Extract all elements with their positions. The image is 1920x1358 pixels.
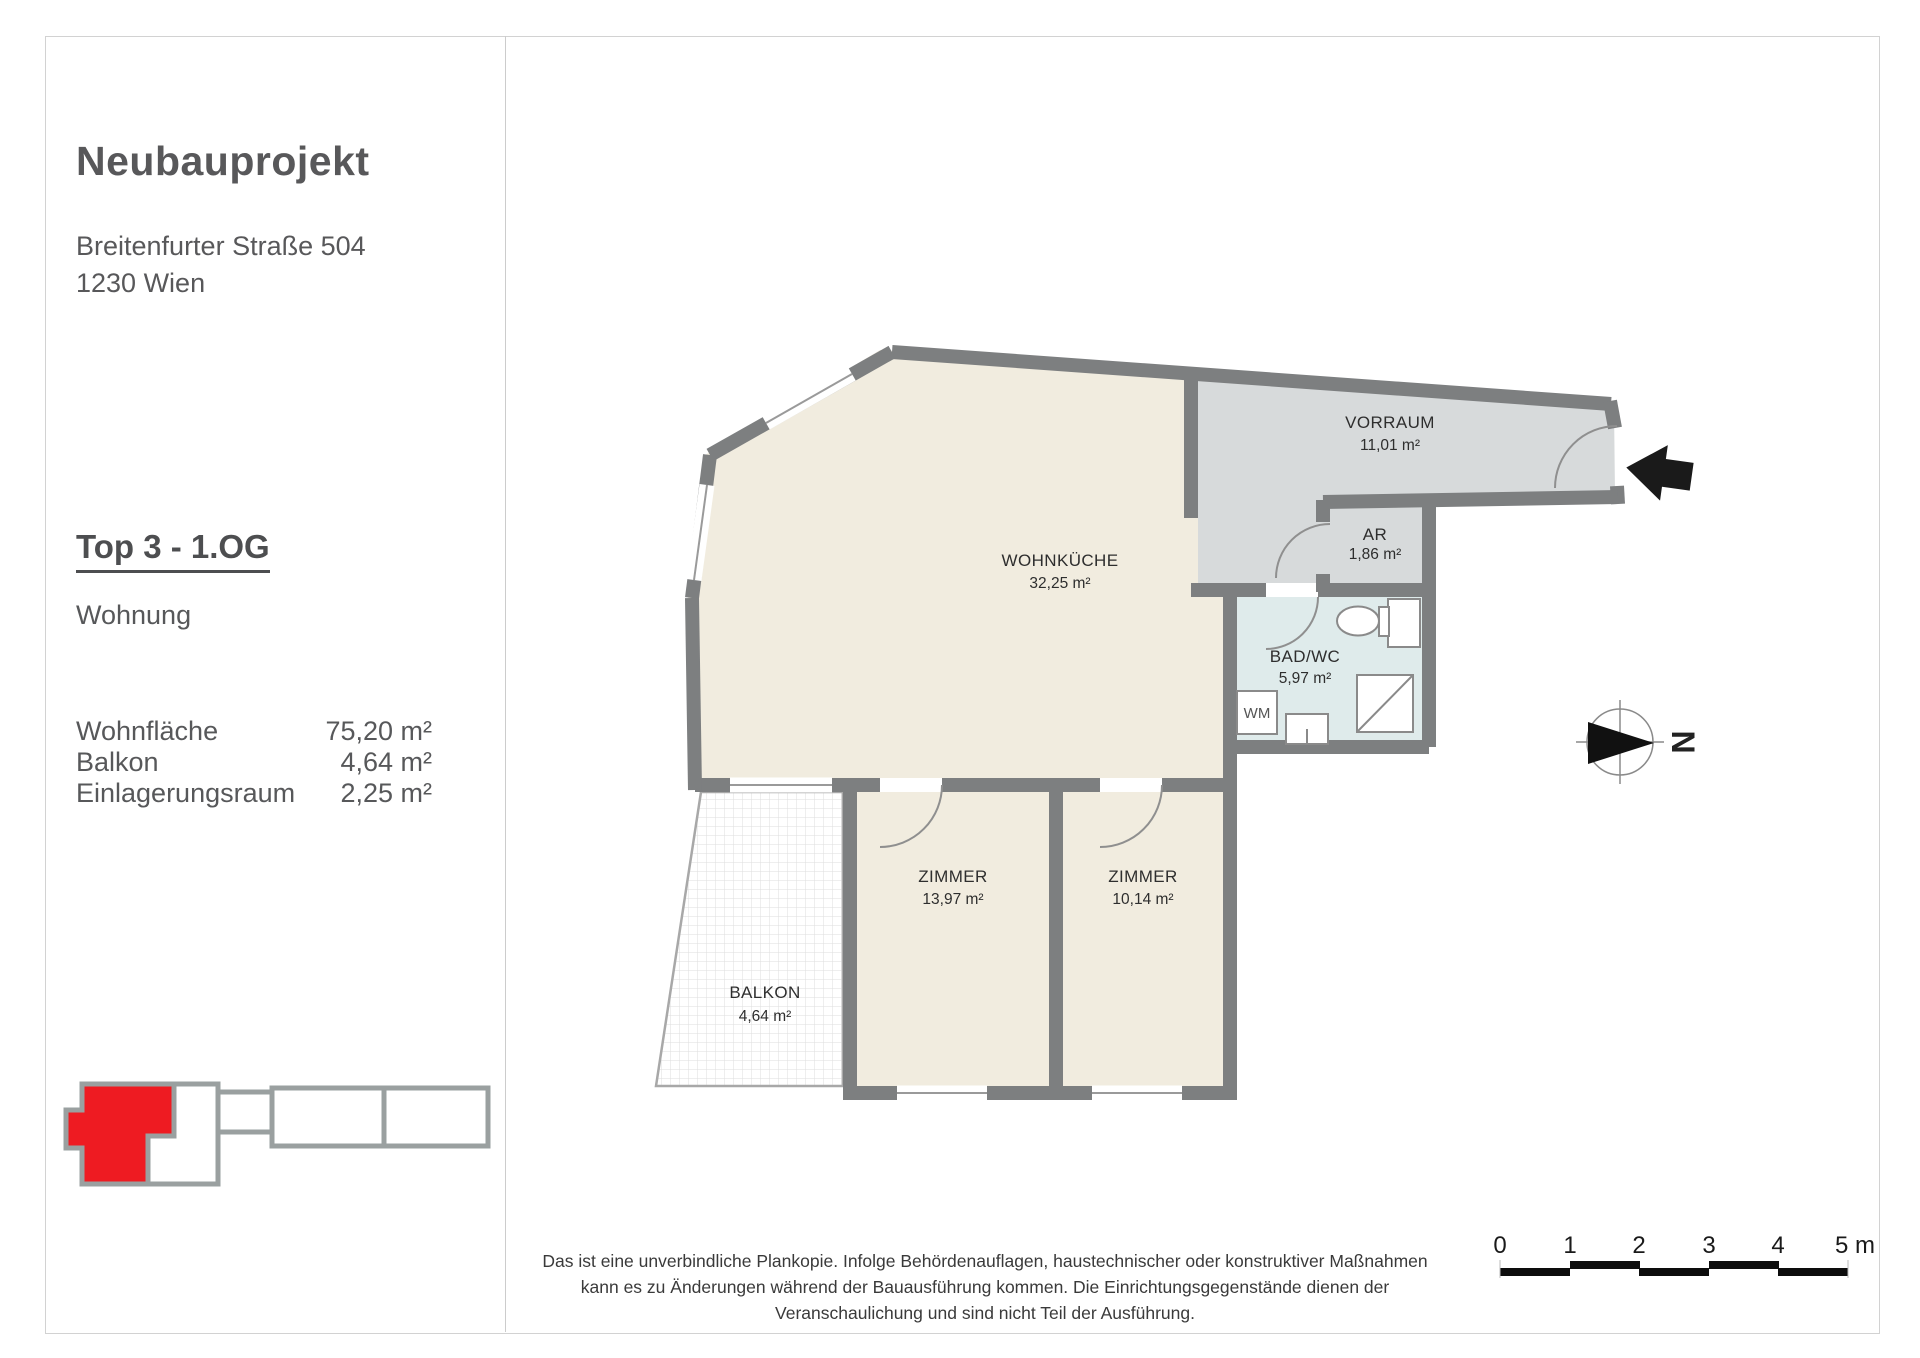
disclaimer-line3: Veranschaulichung und sind nicht Teil de… [540, 1300, 1430, 1326]
scale-tick-4: 4 [1771, 1232, 1784, 1259]
area-row-balkon: Balkon 4,64 m² [76, 747, 432, 778]
scale-tick-2: 2 [1632, 1232, 1645, 1259]
area-value: 75,20 m² [325, 716, 432, 747]
floor-plan: WM WOHNKÜCHE 32,25 m² VORRAUM 11,01 m² A… [580, 250, 1780, 1100]
area-vorraum: 11,01 m² [1360, 437, 1420, 454]
balcony-outline [656, 792, 843, 1086]
disclaimer: Das ist eine unverbindliche Plankopie. I… [540, 1248, 1430, 1326]
label-balkon: BALKON [729, 983, 800, 1002]
area-label: Einlagerungsraum [76, 778, 295, 809]
scale-bar: 0 1 2 3 4 5 m [1480, 1232, 1880, 1302]
area-value: 4,64 m² [340, 747, 432, 778]
area-label: Wohnfläche [76, 716, 218, 747]
scale-bar-segments [1500, 1261, 1848, 1276]
address-line1: Breitenfurter Straße 504 [76, 228, 366, 265]
key-plan-connector [218, 1092, 272, 1132]
area-zimmer2: 10,14 m² [1112, 891, 1173, 908]
area-zimmer1: 13,97 m² [922, 891, 983, 908]
unit-title: Top 3 - 1.OG [76, 528, 270, 573]
project-address: Breitenfurter Straße 504 1230 Wien [76, 228, 366, 302]
scale-tick-1: 1 [1563, 1232, 1576, 1259]
label-wohnkueche: WOHNKÜCHE [1002, 551, 1119, 570]
disclaimer-line1: Das ist eine unverbindliche Plankopie. I… [540, 1248, 1430, 1274]
label-zimmer1: ZIMMER [918, 867, 987, 886]
area-row-einlagerungsraum: Einlagerungsraum 2,25 m² [76, 778, 432, 809]
project-title: Neubauprojekt [76, 138, 370, 185]
label-ar: AR [1363, 525, 1387, 544]
area-value: 2,25 m² [340, 778, 432, 809]
address-line2: 1230 Wien [76, 265, 366, 302]
area-bad: 5,97 m² [1279, 670, 1332, 687]
washing-machine-label: WM [1244, 705, 1271, 722]
scale-tick-0: 0 [1493, 1232, 1506, 1259]
room-ar-floor [1330, 506, 1422, 583]
key-plan-unit-4 [384, 1088, 488, 1146]
area-label: Balkon [76, 747, 159, 778]
scale-tick-5: 5 m [1835, 1232, 1875, 1259]
room-zimmer1-floor [857, 792, 1049, 1086]
key-plan [48, 1076, 508, 1206]
area-ar: 1,86 m² [1349, 546, 1402, 563]
key-plan-unit-3 [272, 1088, 384, 1146]
area-table: Wohnfläche 75,20 m² Balkon 4,64 m² Einla… [76, 716, 432, 809]
room-zimmer2-floor [1063, 792, 1223, 1086]
north-compass-icon: N [1576, 700, 1701, 784]
area-balkon: 4,64 m² [739, 1008, 792, 1025]
scale-tick-3: 3 [1702, 1232, 1715, 1259]
shaft [1388, 599, 1420, 647]
north-label: N [1665, 730, 1701, 753]
disclaimer-line2: kann es zu Änderungen während der Bauaus… [540, 1274, 1430, 1300]
entrance-arrow-icon [1622, 440, 1695, 505]
label-vorraum: VORRAUM [1345, 413, 1435, 432]
area-wohnkueche: 32,25 m² [1029, 575, 1090, 592]
unit-type: Wohnung [76, 600, 191, 631]
area-row-wohnflaeche: Wohnfläche 75,20 m² [76, 716, 432, 747]
toilet-tank [1379, 607, 1389, 636]
toilet-icon [1337, 607, 1379, 636]
label-bad: BAD/WC [1270, 647, 1340, 666]
label-zimmer2: ZIMMER [1108, 867, 1177, 886]
